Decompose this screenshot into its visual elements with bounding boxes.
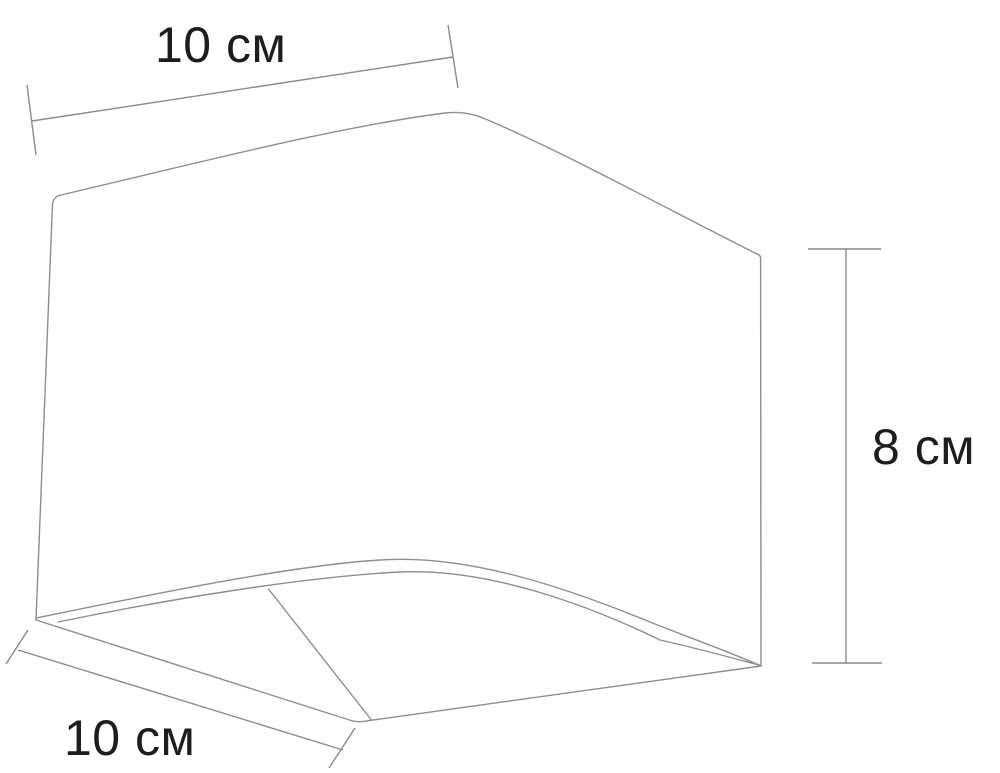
diagram-canvas: 10 см 8 см 10 см: [0, 0, 1000, 773]
lamp-bottom-fold-line: [269, 589, 372, 720]
dim-bottom-tick-right: [329, 728, 355, 768]
lamp-bottom-inner-edge: [58, 572, 759, 665]
dim-right-label: 8 см: [872, 419, 975, 475]
dim-top-tick-right: [448, 25, 458, 88]
dimension-bottom-depth: 10 см: [6, 630, 355, 768]
dim-bottom-tick-left: [6, 630, 28, 664]
lamp-bottom-front-edge: [36, 559, 761, 666]
dimension-drawing: 10 см 8 см 10 см: [0, 0, 1000, 773]
lamp-outline: [36, 112, 761, 666]
dim-top-label: 10 см: [155, 17, 286, 73]
lamp-drawing: [36, 112, 761, 721]
lamp-bottom-rim-outer: [36, 620, 761, 722]
dimension-right-height: 8 см: [808, 249, 975, 663]
dim-bottom-label: 10 см: [64, 710, 195, 766]
dimension-top-width: 10 см: [27, 17, 458, 155]
